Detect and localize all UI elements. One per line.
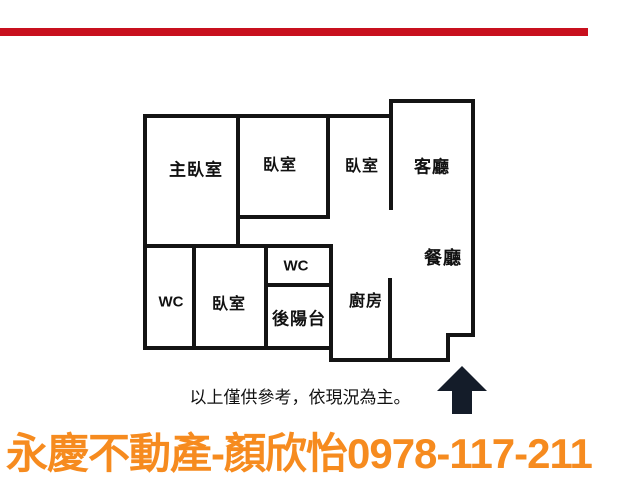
wall-step-horizontal	[446, 333, 475, 337]
wall-top-main	[143, 114, 392, 118]
wall-master-divider	[236, 114, 240, 248]
wall-living-left	[389, 99, 393, 210]
wall-wc-bedroom4	[192, 244, 196, 350]
room-label-bedroom-3: 臥室	[345, 152, 379, 176]
wall-middle-divider	[143, 244, 333, 248]
wall-bedroom4-column	[264, 244, 268, 350]
wall-kitchen-left	[329, 244, 333, 350]
room-label-bedroom-4: 臥室	[212, 290, 246, 314]
real-estate-listing-image: 主臥室 臥室 臥室 客廳 餐廳 WC 後陽台 WC 臥室 廚房 以上僅供參考，依…	[0, 0, 640, 480]
wall-bedroom2-bedroom3	[326, 114, 330, 219]
wall-living-top	[389, 99, 475, 103]
wall-bedroom2-bottom	[238, 215, 330, 219]
wall-wc-balcony	[264, 283, 333, 287]
wall-left-outer	[143, 114, 147, 350]
room-label-dining-room: 餐廳	[424, 244, 462, 270]
top-red-bar	[0, 28, 588, 36]
wall-step-vertical	[446, 333, 450, 362]
room-label-wc-left: WC	[159, 294, 184, 311]
room-label-master-bedroom: 主臥室	[169, 156, 223, 181]
agent-contact-text: 永慶不動產-顏欣怡0978-117-211	[6, 420, 640, 481]
room-label-back-balcony: 後陽台	[272, 305, 326, 330]
room-label-living-room: 客廳	[414, 153, 450, 178]
wall-right-outer	[471, 99, 475, 337]
room-label-bedroom-2: 臥室	[263, 151, 297, 175]
disclaimer-text: 以上僅供參考，依現況為主。	[140, 383, 460, 408]
room-label-wc-upper: WC	[284, 258, 309, 275]
room-label-kitchen: 廚房	[349, 287, 383, 311]
wall-kitchen-right	[388, 278, 392, 362]
wall-bottom-left	[143, 346, 333, 350]
